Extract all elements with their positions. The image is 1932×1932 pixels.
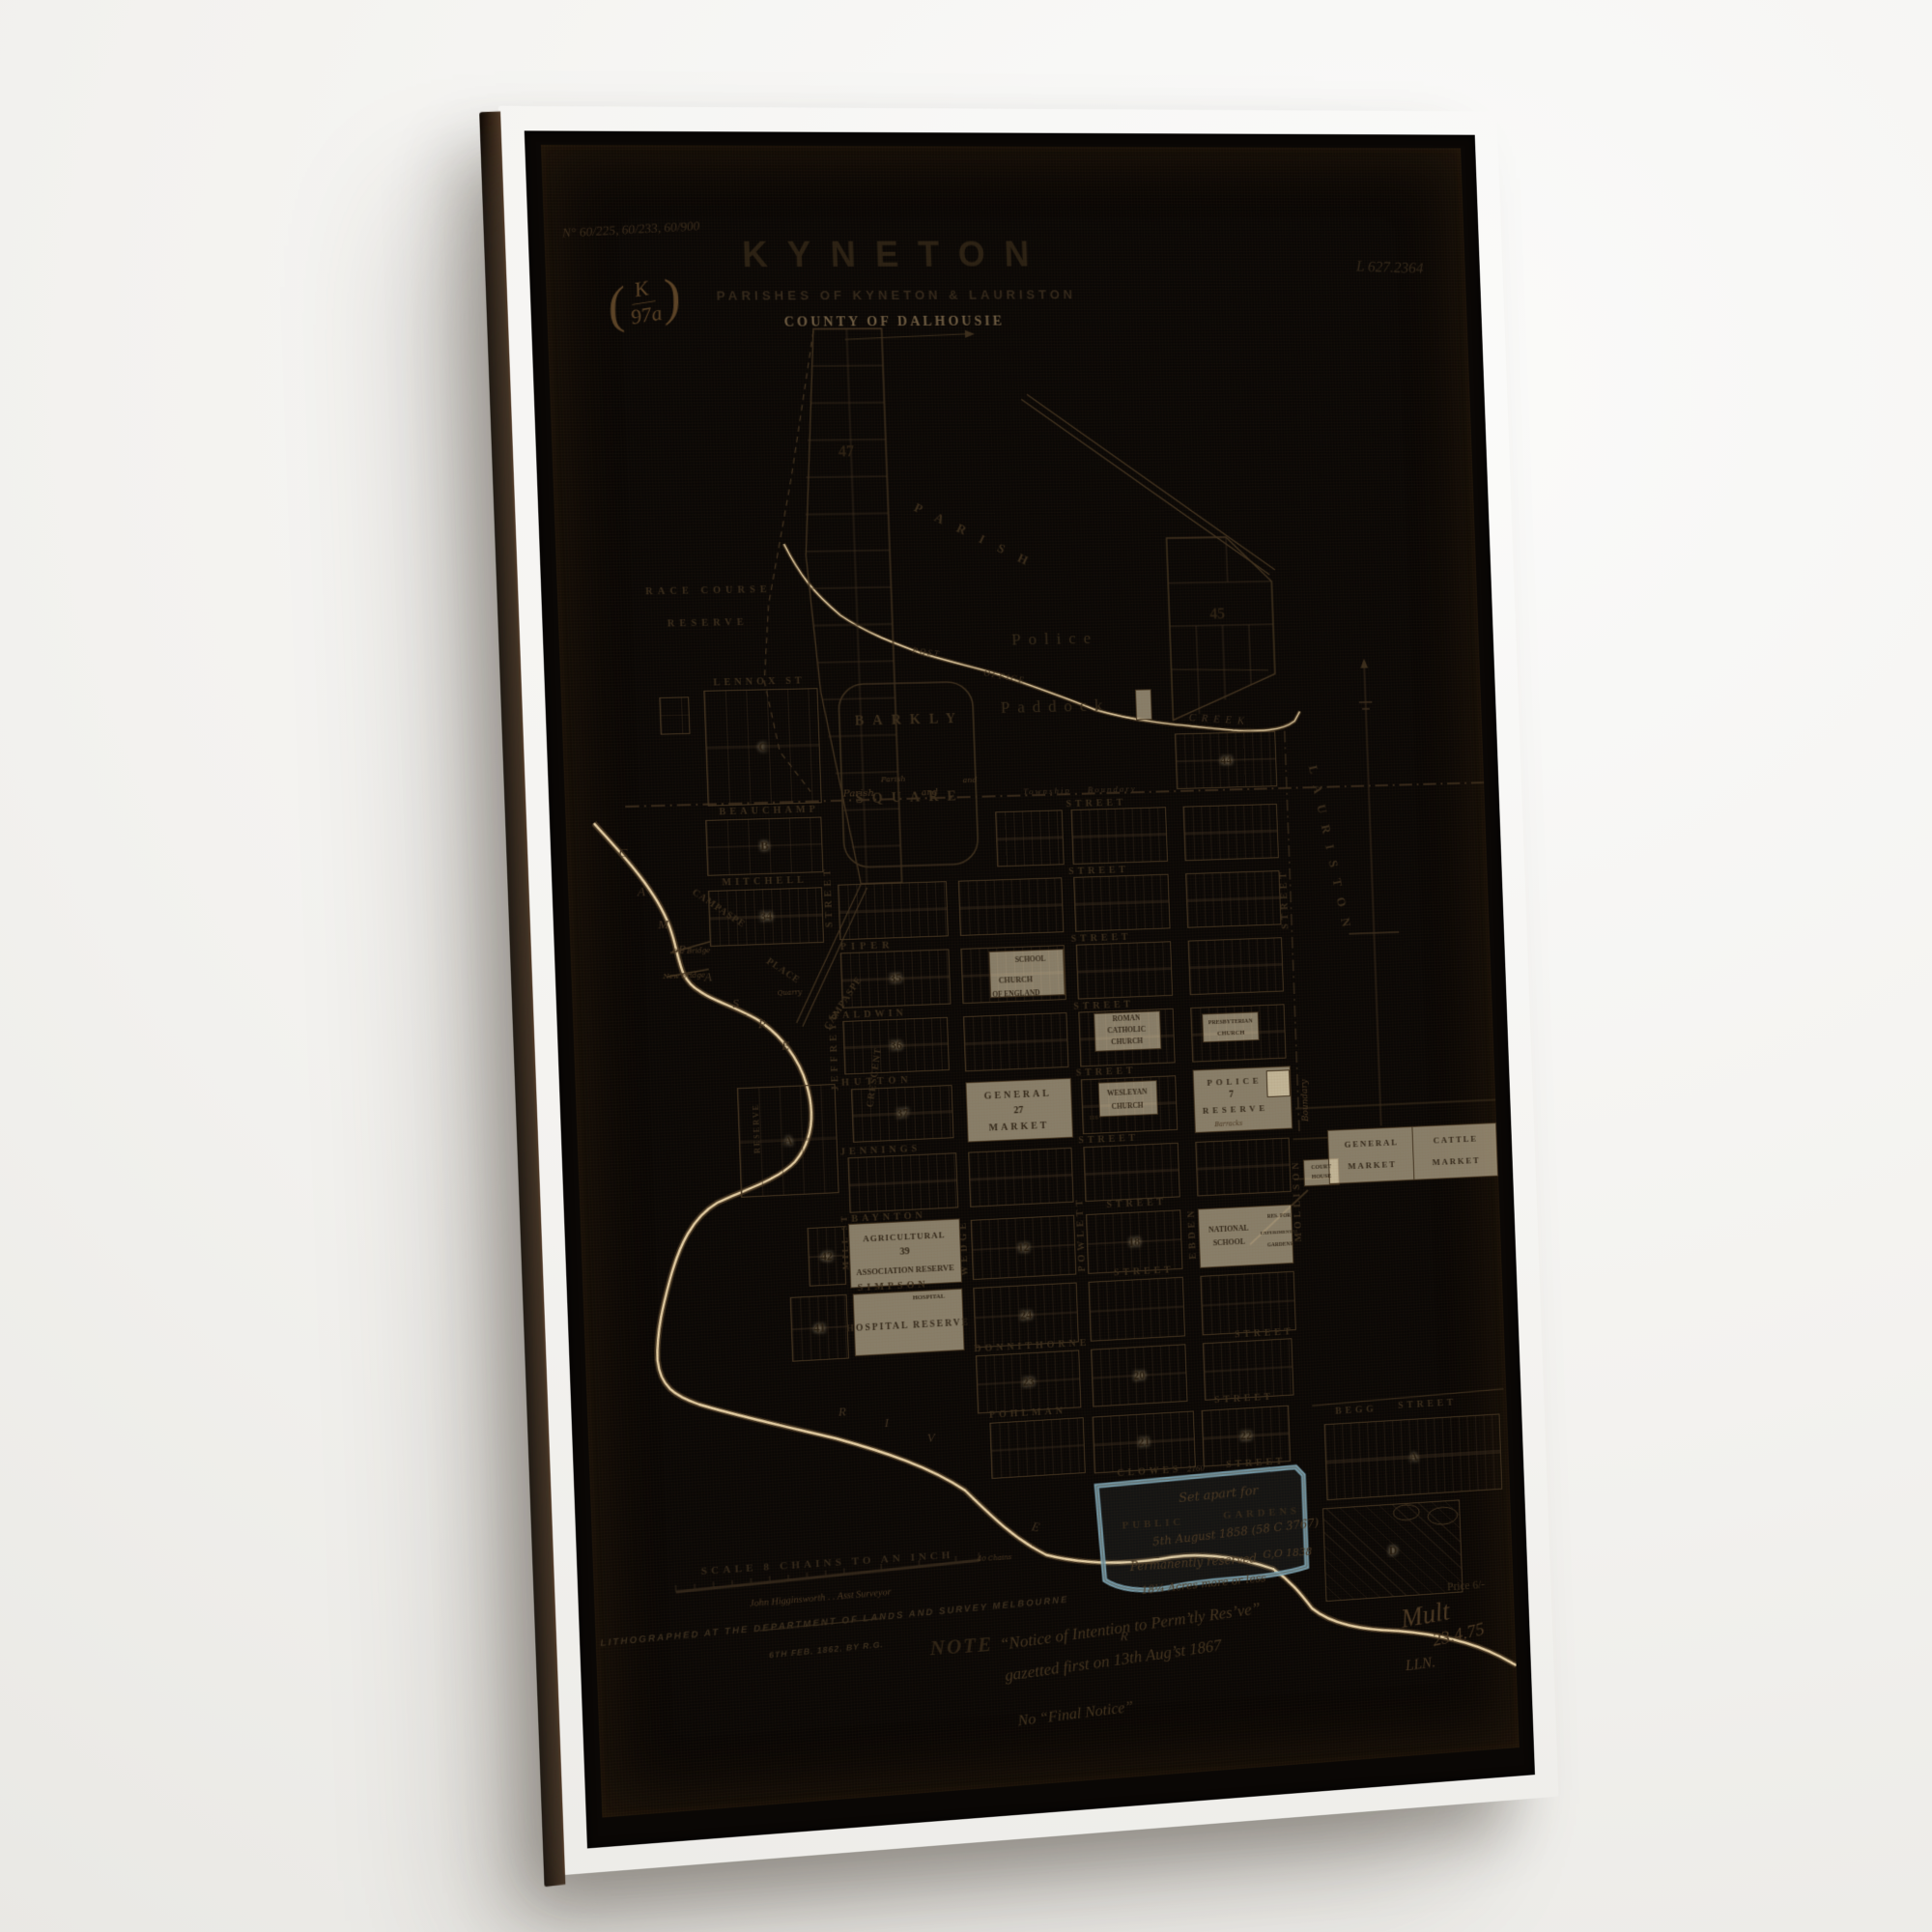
catalog-number: L 627.2364	[1356, 259, 1424, 278]
town-block	[1135, 689, 1152, 720]
town-block	[995, 810, 1065, 867]
town-block: 24	[973, 1282, 1079, 1348]
town-block	[1073, 874, 1170, 932]
map-label: 7	[1229, 1091, 1234, 1100]
town-block: 20	[1091, 1344, 1188, 1406]
map-label: Boundary	[1300, 1079, 1310, 1122]
map-label: PIPER	[840, 941, 895, 952]
map-label: 116	[1089, 1114, 1098, 1121]
town-block: 44	[1175, 731, 1277, 789]
map-label: S	[732, 996, 739, 1009]
town-block	[838, 881, 949, 940]
map-label: Quarry	[777, 989, 802, 997]
town-block	[659, 696, 690, 734]
map-label: Boundary	[1088, 784, 1137, 794]
block-number: 23	[977, 1350, 1080, 1412]
map-label: P	[758, 1016, 767, 1029]
town-block: B	[705, 816, 823, 875]
map-label: RESERVE	[668, 618, 749, 630]
map-label: 2160	[1187, 1463, 1205, 1473]
folio-top: K	[627, 274, 656, 304]
town-block	[1195, 1138, 1291, 1197]
block-number: 18	[1087, 1210, 1182, 1273]
map-label: A	[638, 884, 646, 897]
block-number: 12	[972, 1216, 1076, 1279]
town-block	[958, 877, 1065, 936]
block-number: 20	[1092, 1345, 1186, 1406]
map-label: R	[838, 1405, 847, 1418]
map-label: EBDEN	[1187, 1207, 1199, 1260]
town-block	[1088, 1277, 1185, 1342]
note-label: NOTE	[929, 1633, 993, 1662]
town-block	[1188, 937, 1284, 995]
block-number: 44	[1176, 732, 1276, 788]
town-block: 36	[842, 1017, 950, 1075]
map-label: 47	[838, 444, 855, 460]
picture-frame: CB34353637421218412423202122ADA44 LENNOX…	[498, 106, 1559, 1875]
town-block	[1200, 1271, 1296, 1336]
map-label: Township	[1023, 786, 1071, 796]
wall: CB34353637421218412423202122ADA44 LENNOX…	[0, 0, 1932, 1932]
map-label: CHURCH	[1217, 1030, 1244, 1037]
block-number: 36	[843, 1018, 949, 1074]
town-block	[1327, 1126, 1414, 1184]
town-block	[847, 1152, 958, 1213]
town-block	[1098, 1080, 1158, 1117]
map-subtitle: PARISHES OF KYNETON & LAURISTON	[716, 287, 1076, 302]
map-label: BARKLY	[855, 713, 965, 729]
map-label: CHURCH	[1112, 1102, 1144, 1111]
block-number: 41	[791, 1295, 848, 1361]
map-label: CHURCH	[999, 976, 1034, 984]
map-label: SCHOOL	[1015, 955, 1046, 964]
map-label: HOUSE	[1312, 1174, 1332, 1180]
town-block	[989, 1417, 1085, 1479]
block-number: 24	[974, 1284, 1078, 1348]
town-block: A	[1324, 1413, 1503, 1500]
map-label: V	[927, 1431, 935, 1444]
town-block: 23	[976, 1350, 1082, 1413]
town-block	[1083, 1143, 1179, 1202]
block-number: A	[1325, 1414, 1502, 1499]
county-label: COUNTY OF DALHOUSIE	[783, 315, 1005, 331]
map-label: WEDGE	[959, 1219, 971, 1276]
folio-annotation: ( K 97a )	[602, 268, 686, 336]
map-label: COURT	[1311, 1164, 1331, 1171]
town-block: 41	[790, 1294, 849, 1362]
folio-bottom: 97a	[629, 300, 665, 329]
map-label: STREET	[1065, 798, 1126, 810]
map-label: A	[704, 970, 713, 982]
map-label: 39	[899, 1247, 909, 1258]
map-label: E	[781, 1038, 790, 1051]
town-block	[1203, 1338, 1294, 1401]
map-label: WESLEYAN	[1107, 1089, 1148, 1097]
map-label: CATHOLIC	[1107, 1026, 1146, 1035]
town-block	[1183, 804, 1279, 861]
map-title: KYNETON	[742, 234, 1049, 275]
map-label: M	[658, 917, 669, 930]
town-block: 12	[971, 1215, 1077, 1280]
map-canvas: CB34353637421218412423202122ADA44 LENNOX…	[541, 145, 1520, 1818]
map-label: Barracks	[1214, 1121, 1242, 1128]
map-label: C	[618, 845, 627, 859]
town-block	[968, 1148, 1073, 1207]
block-number: C	[704, 689, 820, 805]
town-block	[1076, 941, 1173, 999]
map-label: LENNOX ST	[713, 676, 806, 688]
map-label: Paddock	[1001, 696, 1111, 716]
map-label: 45	[1209, 607, 1225, 622]
town-block	[1185, 870, 1281, 928]
map-label: Parish	[881, 776, 906, 784]
map-label: and	[962, 777, 977, 784]
map-label: 27	[1013, 1106, 1023, 1116]
floater-gap: CB34353637421218412423202122ADA44 LENNOX…	[525, 130, 1535, 1848]
block-number: B	[706, 818, 822, 875]
map-label: I	[884, 1415, 889, 1428]
map-label: P	[678, 942, 687, 955]
map-label: STREET	[1068, 866, 1129, 877]
price-label: Price 6/-	[1447, 1577, 1486, 1594]
map-label: OF ENGLAND	[992, 989, 1040, 998]
town-block	[1411, 1122, 1498, 1180]
map-label: G,O 1838	[1263, 1546, 1312, 1559]
town-block: C	[703, 688, 822, 806]
town-block	[963, 1012, 1068, 1071]
map-label: Police	[1011, 629, 1098, 647]
map-label: ROMAN	[1112, 1014, 1140, 1023]
town-block	[1266, 1069, 1291, 1097]
block-number: D	[1323, 1500, 1462, 1601]
block-number: 21	[1094, 1411, 1195, 1472]
town-block: D	[1322, 1499, 1463, 1602]
framed-canvas-print: CB34353637421218412423202122ADA44 LENNOX…	[498, 106, 1559, 1875]
map-label: SCHOOL	[1213, 1238, 1246, 1248]
town-block	[1071, 807, 1168, 865]
town-block	[1202, 1011, 1260, 1042]
map-label: CHURCH	[1111, 1037, 1143, 1046]
